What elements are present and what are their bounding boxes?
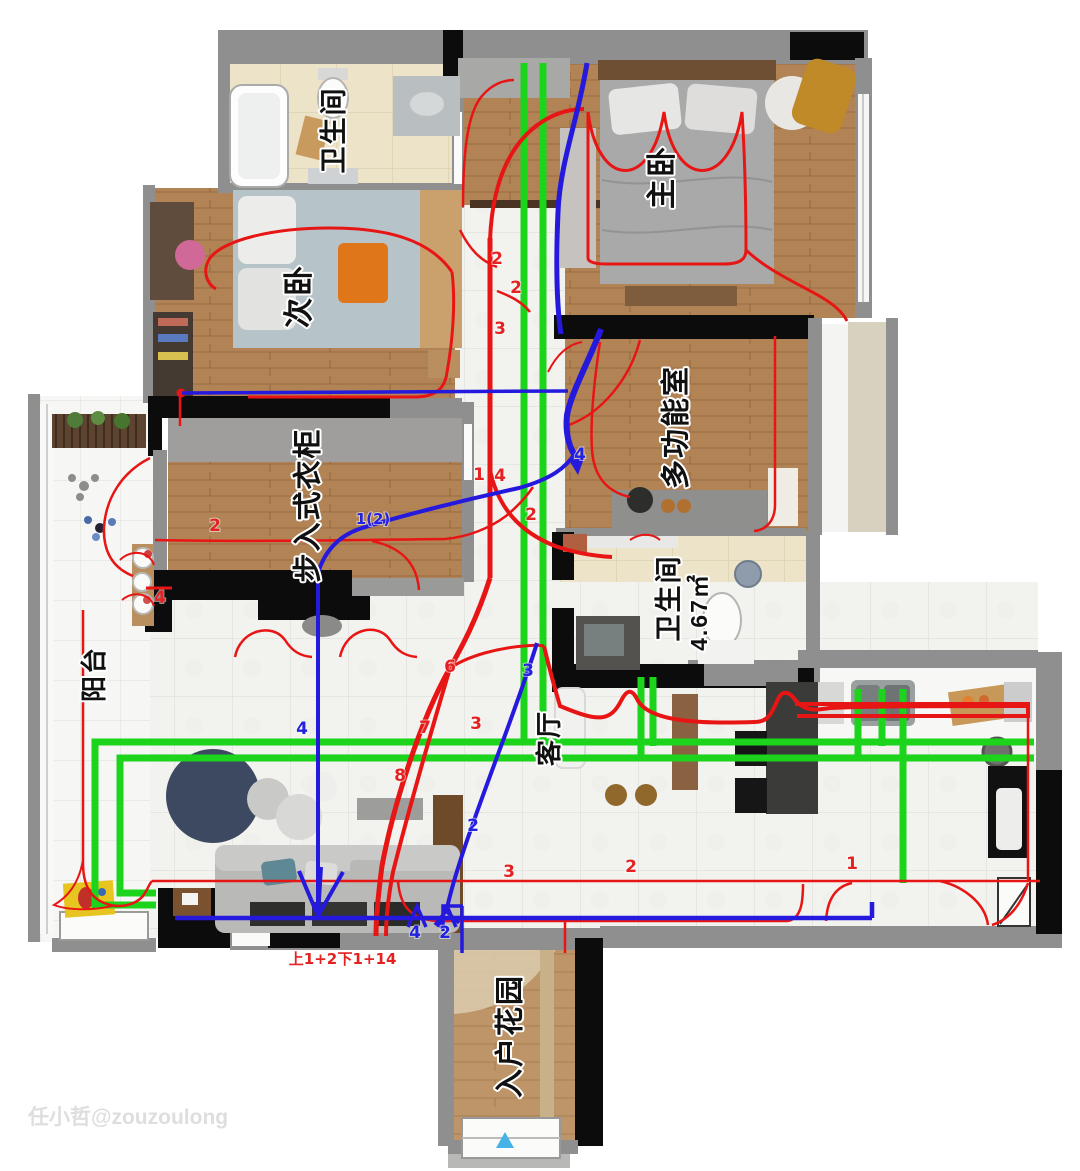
floor-plan-page: 卫生间次卧主卧多功能室步入式衣柜卫生间4.67㎡阳台客厅入户花园 2231422… bbox=[0, 0, 1080, 1171]
shower-head bbox=[735, 561, 761, 587]
pink-chair bbox=[175, 240, 205, 270]
circuit-number-blue: 2 bbox=[467, 816, 479, 836]
room-label-entry-garden: 入户花园 bbox=[493, 974, 527, 1098]
dark-table bbox=[766, 682, 818, 814]
room-label-bathroom-main: 卫生间 bbox=[654, 555, 684, 642]
circuit-number-red: 6 bbox=[444, 657, 456, 677]
circuit-number-red: 7 bbox=[419, 718, 431, 738]
circuit-number-red: 2 bbox=[491, 249, 503, 269]
room-label-secondary-bedroom: 次卧 bbox=[283, 264, 316, 328]
room-label-balcony: 阳台 bbox=[79, 646, 109, 702]
circuit-number-red: 2 bbox=[510, 278, 522, 298]
circuit-number-red: 3 bbox=[494, 319, 506, 339]
circuit-number-red: 2 bbox=[625, 857, 637, 877]
circuit-number-red: 8 bbox=[394, 766, 406, 786]
circuit-number-red: 1 bbox=[473, 465, 485, 485]
orange-cushion bbox=[338, 243, 388, 303]
stool bbox=[605, 784, 627, 806]
headboard bbox=[598, 60, 776, 80]
circuit-number-red: 2 bbox=[209, 516, 221, 536]
room-label-walk-in-closet: 步入式衣柜 bbox=[292, 427, 325, 582]
circuit-number-blue: 4 bbox=[409, 923, 421, 943]
circuit-number-blue: 2 bbox=[439, 923, 451, 943]
circuit-number-red: 3 bbox=[470, 714, 482, 734]
round-rug bbox=[166, 749, 260, 843]
watermark: 任小哲@zouzoulong bbox=[27, 1105, 228, 1129]
circuit-number-red: 4 bbox=[154, 588, 166, 608]
room-label-multi-function: 多功能室 bbox=[659, 365, 693, 489]
room-label-master-bedroom: 主卧 bbox=[646, 145, 679, 209]
circuit-number-red: 上1+2 bbox=[289, 950, 337, 968]
circuit-number-red: 2 bbox=[525, 505, 537, 525]
room-label-bathroom-top: 卫生间 bbox=[319, 87, 349, 174]
room-label-living-room: 客厅 bbox=[534, 710, 564, 766]
circuit-number-blue: 1(2) bbox=[356, 510, 391, 528]
circuit-number-blue: 4 bbox=[574, 445, 586, 465]
circuit-number-red: 下1+14 bbox=[338, 950, 397, 968]
circuit-number-blue: 3 bbox=[522, 661, 534, 681]
room-label-bathroom-main-area: 4.67㎡ bbox=[686, 573, 712, 651]
circuit-number-red: 4 bbox=[494, 466, 506, 486]
circuit-number-red: 1 bbox=[846, 854, 858, 874]
stool bbox=[635, 784, 657, 806]
floor-plan-image: 卫生间次卧主卧多功能室步入式衣柜卫生间4.67㎡阳台客厅入户花园 2231422… bbox=[0, 0, 1080, 1171]
circuit-number-blue: 4 bbox=[296, 719, 308, 739]
circuit-number-red: 3 bbox=[503, 862, 515, 882]
